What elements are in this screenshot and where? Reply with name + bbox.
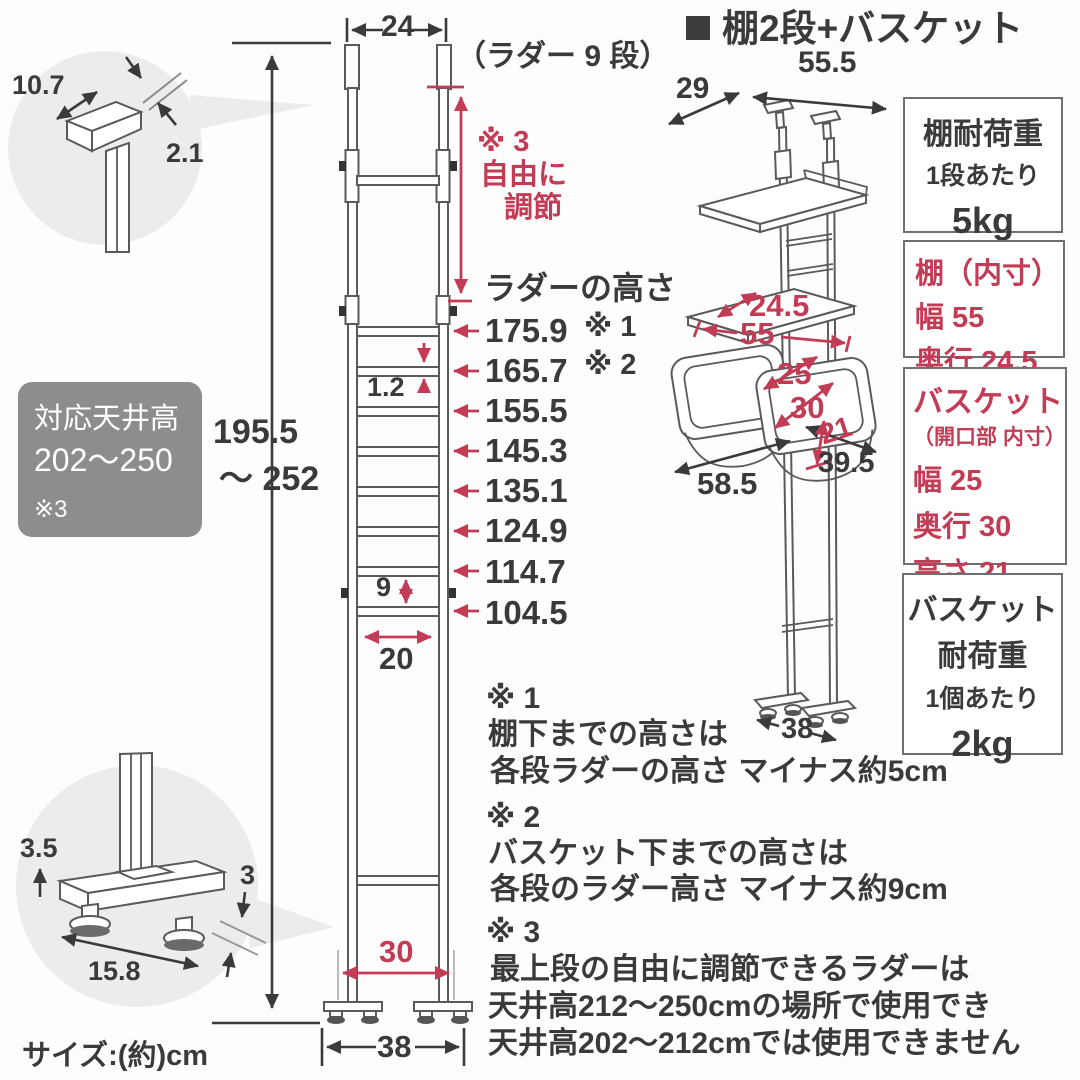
ladder-height-value: 165.7 <box>485 354 568 388</box>
product-dimension-diagram: .dim{stroke:#3a3a3a;stroke-width:2.6;fil… <box>0 0 1080 1080</box>
shelf-inner-title: 棚（内寸） <box>915 250 1063 292</box>
basket-load-box: バスケット 耐荷重 1個あたり 2kg <box>902 573 1063 755</box>
overall-height-range: 〜 252 <box>219 462 319 497</box>
right-diagram-title: 棚2段+バスケット <box>722 10 1023 48</box>
ladder-outer-width: 38 <box>377 1031 411 1063</box>
foot-detail-bubble <box>16 753 334 1007</box>
overall-width-58-5: 58.5 <box>697 468 757 500</box>
width-55-5: 55.5 <box>798 48 856 79</box>
basket-inner-subtitle: （開口部 内寸） <box>913 421 1065 451</box>
ladder-front-drawing <box>324 45 472 1024</box>
badge-ref: ※3 <box>34 494 202 526</box>
note3-ref: ※ 3 <box>486 918 540 949</box>
basket-load-title2: 耐荷重 <box>904 631 1061 675</box>
note2-line2: 各段のラダー高さ マイナス約9cm <box>490 875 948 906</box>
ladder-top-width: 24 <box>381 12 414 43</box>
basket-width-25: 25 <box>777 358 811 390</box>
ladder-height-value: 135.1 <box>485 474 568 508</box>
foot-height-value: 3.5 <box>20 835 58 863</box>
note2-ref: ※ 2 <box>486 803 540 834</box>
cap-length-value: 10.7 <box>12 72 65 100</box>
adjust-ref: ※ 3 <box>477 128 529 158</box>
heights-title: ラダーの高さ <box>484 272 676 305</box>
basket-load-per: 1個あたり <box>904 679 1061 715</box>
ladder-height-value: 114.7 <box>485 555 566 589</box>
ladder-height-value: 104.5 <box>485 596 568 630</box>
ladder-height-value: 175.9 <box>485 314 568 348</box>
shelf-load-per: 1段あたり <box>905 156 1061 192</box>
adjust-note-1: 自由に <box>480 161 567 191</box>
ladder-inner-width: 20 <box>379 643 413 675</box>
rung-thickness: 1.2 <box>367 374 405 402</box>
note1-line2: 各段ラダーの高さ マイナス約5cm <box>490 757 948 788</box>
shelf-load-box: 棚耐荷重 1段あたり 5kg <box>903 97 1063 233</box>
shelf-inner-width: 幅 55 <box>915 294 1063 336</box>
note3-line2: 天井高212〜250cmの場所で使用でき <box>488 992 991 1023</box>
basket-inner-depth: 奥行 30 <box>913 503 1065 545</box>
basket-load-title: バスケット <box>904 585 1061 629</box>
badge-range: 202〜250 <box>34 439 202 482</box>
shelf-width-55: 55 <box>740 318 774 350</box>
note1-ref: ※ 1 <box>486 684 540 715</box>
feet-span: 30 <box>379 936 413 968</box>
ladder-height-value: 145.3 <box>485 434 568 468</box>
depth-29: 29 <box>676 74 709 105</box>
badge-title: 対応天井高 <box>34 400 202 439</box>
right-base-width-38: 38 <box>781 715 813 745</box>
size-unit-note: サイズ:(約)cm <box>22 1042 208 1072</box>
overall-depth-39-5: 39.5 <box>818 449 874 479</box>
overall-height-value: 195.5 <box>213 415 298 450</box>
rung-gap: 9 <box>376 574 391 602</box>
shelf-inner-box: 棚（内寸） 幅 55 奥行 24.5 <box>903 240 1065 358</box>
ladder-steps-label: （ラダー 9 段） <box>456 42 669 73</box>
note1-line1: 棚下までの高さは <box>488 720 728 751</box>
ladder-height-value: 155.5 <box>485 394 568 428</box>
title-bullet-icon <box>686 16 710 40</box>
shelf-load-title: 棚耐荷重 <box>905 109 1061 153</box>
note2-line1: バスケット下までの高さは <box>488 839 848 870</box>
base-length-value: 15.8 <box>88 958 141 986</box>
note3-line1: 最上段の自由に調節できるラダーは <box>490 955 969 986</box>
basket-inner-box: バスケット （開口部 内寸） 幅 25 奥行 30 高さ 21 <box>903 367 1067 565</box>
adjust-note-2: 調節 <box>504 194 562 224</box>
ceiling-gap-value: 2.1 <box>166 140 204 168</box>
heights-ref-1: ※ 1 <box>584 313 636 343</box>
basket-inner-title: バスケット <box>913 377 1065 421</box>
shelf-load-value: 5kg <box>905 200 1061 242</box>
shelf-basket-drawing <box>669 100 883 728</box>
note3-line3: 天井高202〜212cmでは使用できません <box>488 1029 1021 1060</box>
ladder-height-value: 124.9 <box>485 514 568 548</box>
ceiling-height-badge: 対応天井高 202〜250 ※3 <box>18 382 202 537</box>
floor-gap-value: 3 <box>240 862 255 890</box>
heights-ref-2: ※ 2 <box>584 351 636 381</box>
basket-inner-width: 幅 25 <box>913 457 1065 499</box>
